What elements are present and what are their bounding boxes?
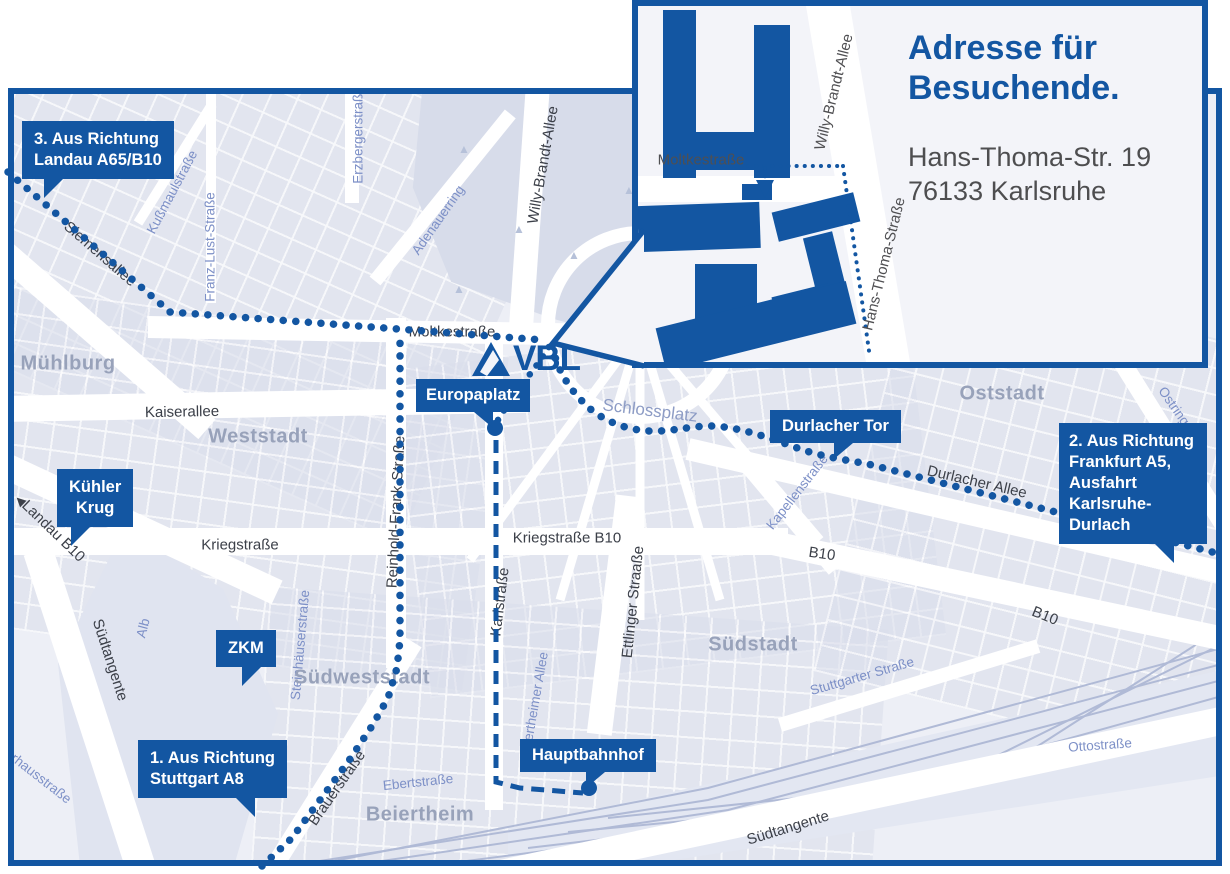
district-label-muehlburg: Mühlburg [20,353,115,376]
tree-icon: ▲ [453,282,465,296]
street-label-moltkestrasse: Moltkestraße [409,324,496,341]
callout-stuttgart: 1. Aus Richtung Stuttgart A8 [138,740,287,798]
callout-zkm: ZKM [216,630,276,667]
tree-icon: ▲ [608,298,620,312]
street-label-erzbergerstrasse: Erzbergerstraße [351,88,366,184]
vbl-triangle-icon [472,341,510,377]
tree-icon: ▲ [458,142,470,156]
inset-title: Adresse für Besuchende. [908,28,1120,108]
district-label-beiertheim: Beiertheim [366,804,474,827]
vbl-logo-text: VBL [513,341,580,377]
district-label-suedstadt: Südstadt [708,634,798,657]
inset-address-callout: Moltkestraße Willy-Brandt-Allee Hans-Tho… [632,0,1208,368]
inset-address: Hans-Thoma-Str. 19 76133 Karlsruhe [908,140,1151,208]
callout-durlacher-tor: Durlacher Tor [770,410,901,443]
inset-street-label-moltkestrasse: Moltkestraße [658,152,745,169]
street-label-franz-lust-strasse: Franz-Lust-Straße [203,192,218,302]
district-label-oststadt: Oststadt [959,383,1044,406]
callout-hauptbahnhof: Hauptbahnhof [520,739,656,772]
karlsruhe-directions-map: ▲ ▲ ▲ ▲ ▲ ▲ Siemensallee Moltkestraße Ka… [0,0,1230,874]
callout-frankfurt: 2. Aus Richtung Frankfurt A5, Ausfahrt K… [1059,423,1207,544]
street-label-kriegstrasse: Kriegstraße [201,537,279,554]
street-label-b10-a: B10 [808,544,837,565]
tree-icon: ▲ [568,248,580,262]
district-label-suedweststadt: Südweststadt [294,667,430,690]
district-label-weststadt: Weststadt [208,426,308,449]
callout-landau: 3. Aus Richtung Landau A65/B10 [22,121,174,179]
street-label-kriegstrasse-b10: Kriegstraße B10 [513,530,621,547]
street-label-kaiserallee: Kaiserallee [145,403,220,421]
callout-europaplatz: Europaplatz [416,379,530,412]
vbl-logo: VBL [472,341,580,377]
tree-icon: ▲ [513,222,525,236]
callout-kuehler-krug: Kühler Krug [57,469,133,527]
